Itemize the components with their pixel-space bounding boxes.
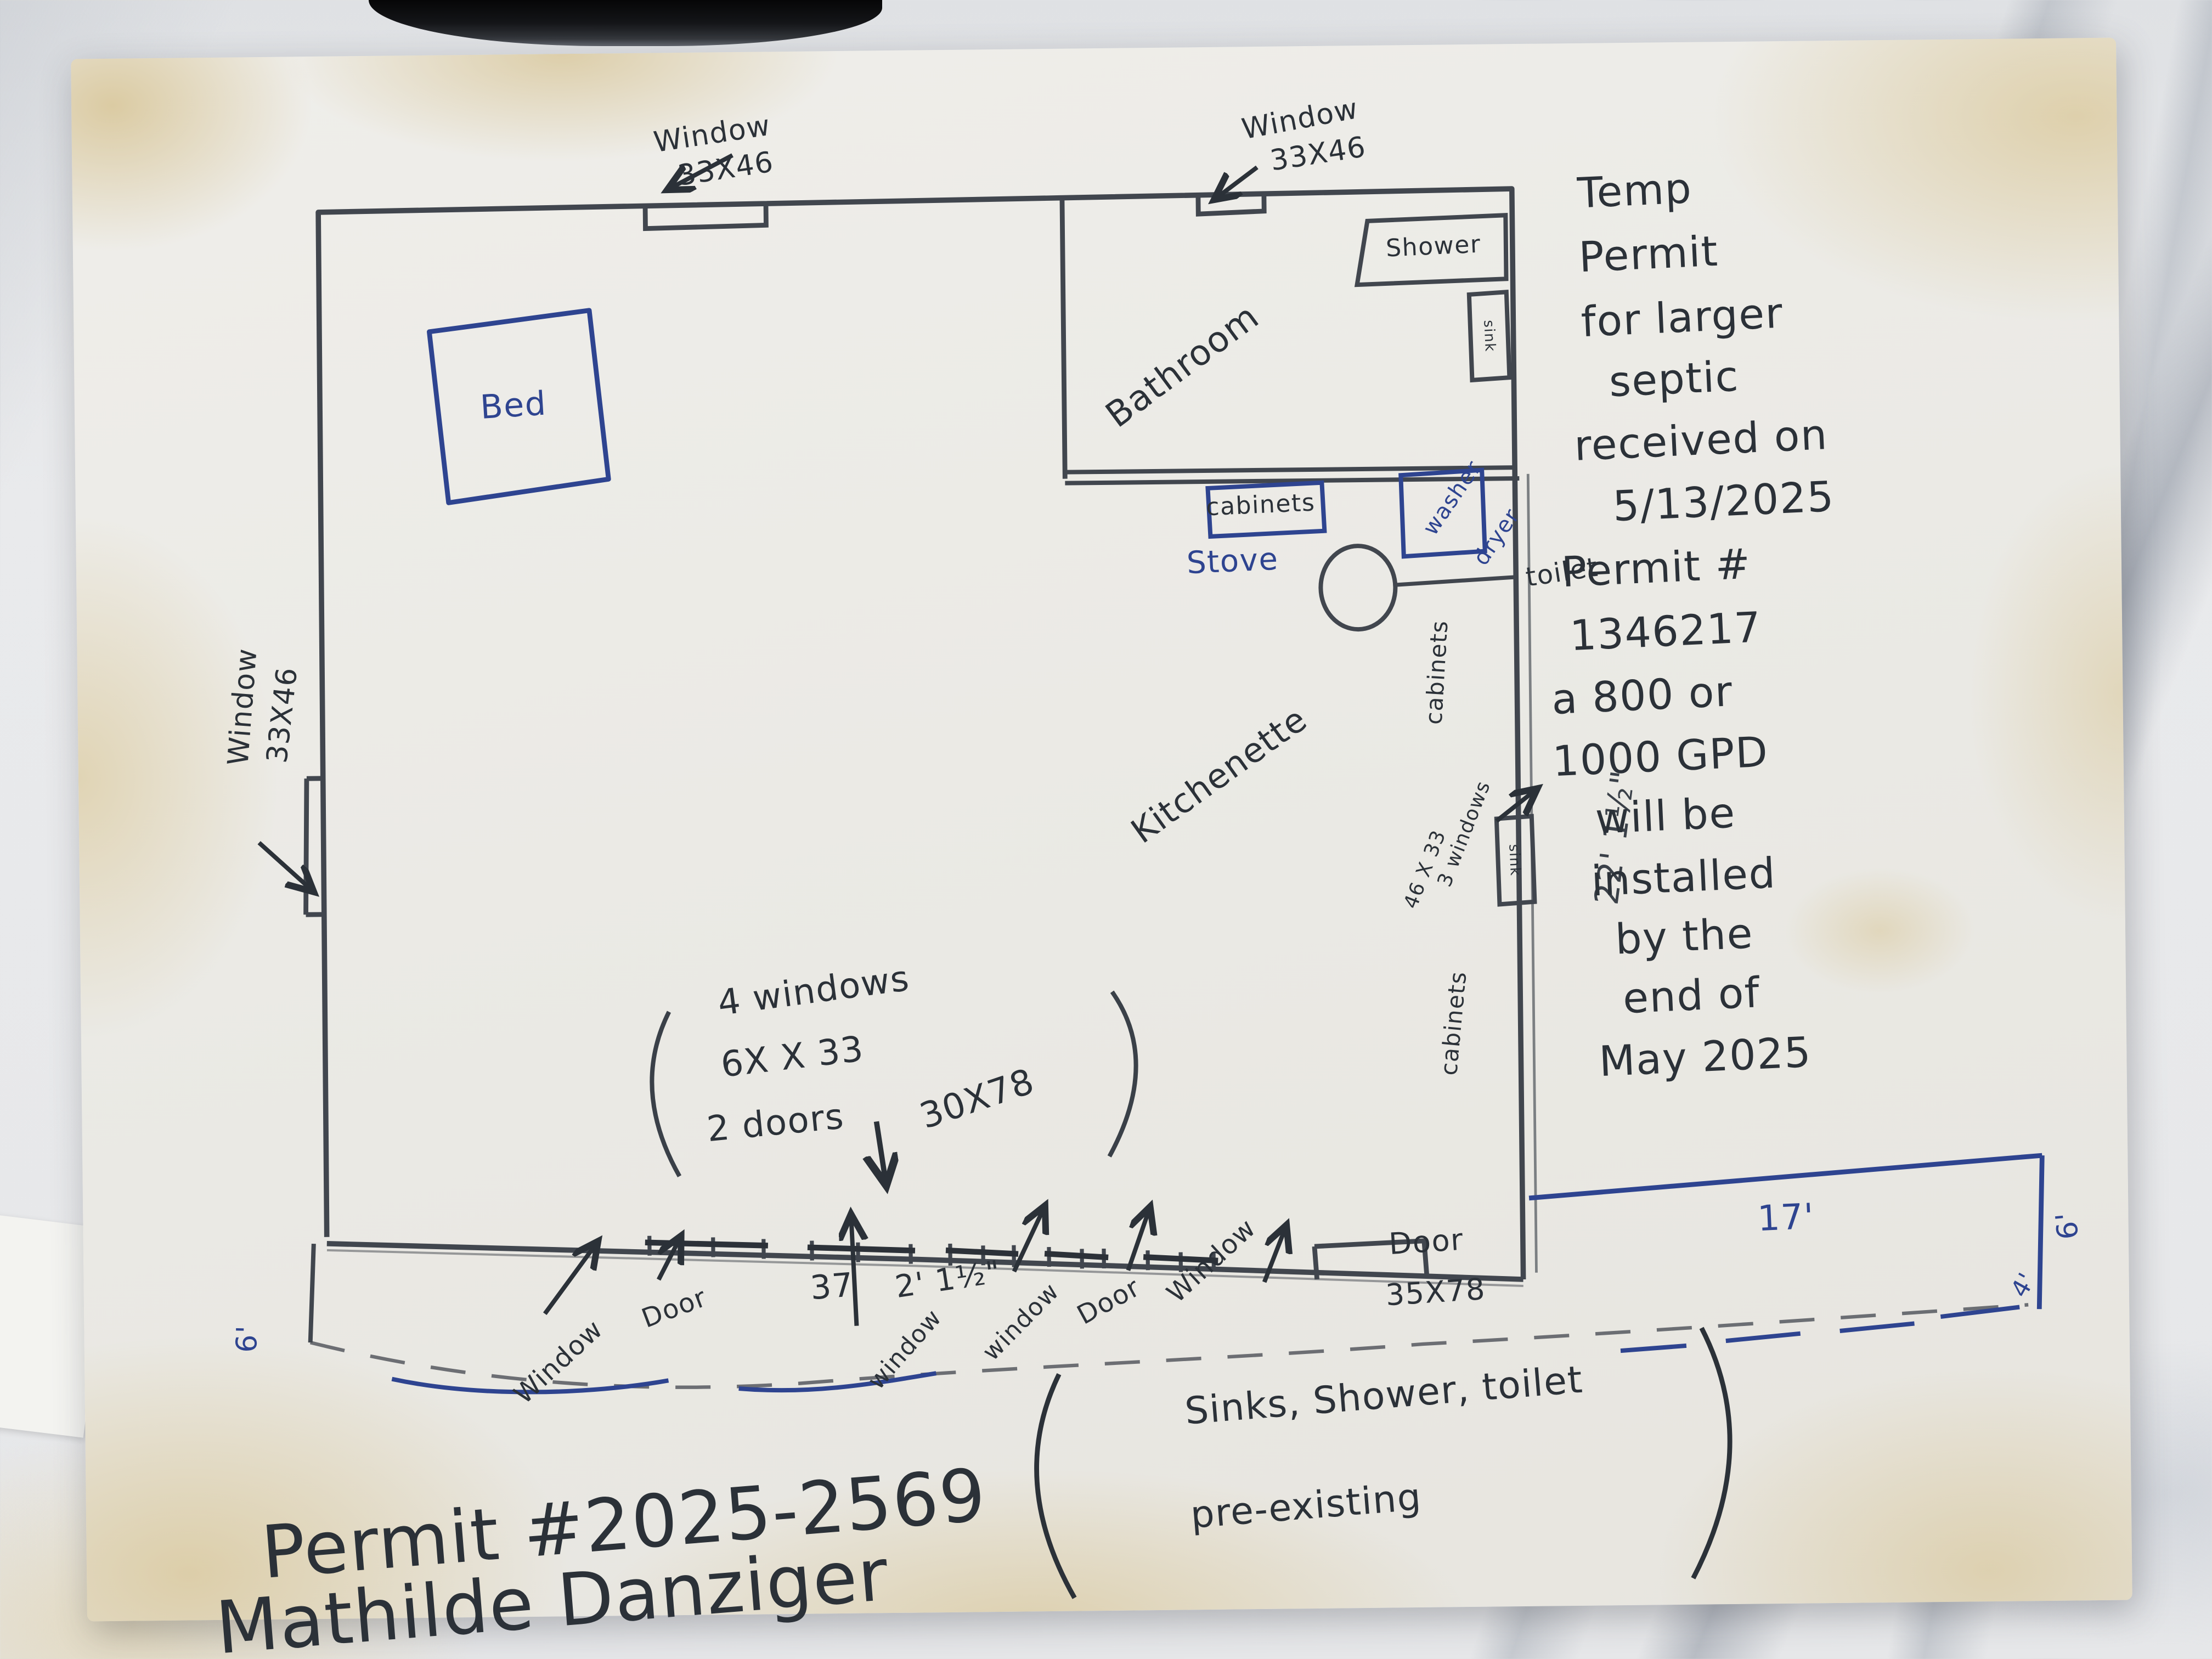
deck-blue-waves	[392, 1373, 936, 1395]
septic-note-line: for larger	[1580, 290, 1784, 348]
bath-sink-label: sink	[1480, 319, 1499, 352]
floorplan-linework	[71, 38, 2132, 1622]
bottom-door3-size: 35X78	[1385, 1273, 1487, 1314]
deck-left-edge	[309, 1244, 315, 1342]
gpd-note-line: a 800 or	[1550, 668, 1734, 725]
dim-6ft-left-label: 6'	[232, 1324, 266, 1353]
arrow-bottom-window1	[544, 1243, 597, 1314]
gpd-note-line: installed	[1590, 850, 1778, 906]
paper-sheet: Window 33X46 Window 33X46 Window 33X46 B…	[71, 38, 2132, 1622]
gpd-note-line: Permit #	[1561, 541, 1752, 598]
bottom-door3-label: Door	[1388, 1223, 1465, 1263]
pre-existing-parens	[1035, 1328, 1731, 1598]
dark-counter-object	[369, 0, 882, 46]
dim-17ft-label: 17'	[1757, 1195, 1815, 1240]
cabinets-top-label: cabinets	[1205, 488, 1316, 522]
gpd-note-line: May 2025	[1598, 1029, 1813, 1087]
right-wall	[1512, 189, 1523, 1279]
top-wall	[318, 189, 1512, 212]
septic-note-line: Permit	[1578, 228, 1719, 283]
gpd-note-line: by the	[1614, 910, 1754, 964]
septic-note-line: Temp	[1576, 165, 1693, 218]
bed-label: Bed	[479, 383, 548, 427]
arrow-center-note	[877, 1121, 886, 1183]
shower-label: Shower	[1385, 230, 1482, 263]
photo-scene: Window 33X46 Window 33X46 Window 33X46 B…	[0, 0, 2212, 1659]
gpd-note-line: end of	[1622, 969, 1761, 1024]
toilet-line	[1393, 577, 1514, 585]
gpd-note-line: 1346217	[1569, 604, 1763, 661]
bathroom-partition	[1062, 200, 1065, 479]
septic-note-line: 5/13/2025	[1612, 473, 1836, 532]
septic-note-line: septic	[1608, 353, 1740, 408]
toilet-bowl	[1321, 545, 1396, 629]
stove-label: Stove	[1186, 543, 1279, 583]
gpd-note-line: will be	[1594, 789, 1737, 844]
dim-6ft-right-label: 6'	[2051, 1210, 2087, 1240]
left-wall	[316, 212, 329, 1237]
kitchen-sink-label: sink	[1505, 844, 1524, 877]
dim-37-label: 37	[809, 1265, 855, 1308]
gpd-note-line: 1000 GPD	[1551, 729, 1769, 787]
